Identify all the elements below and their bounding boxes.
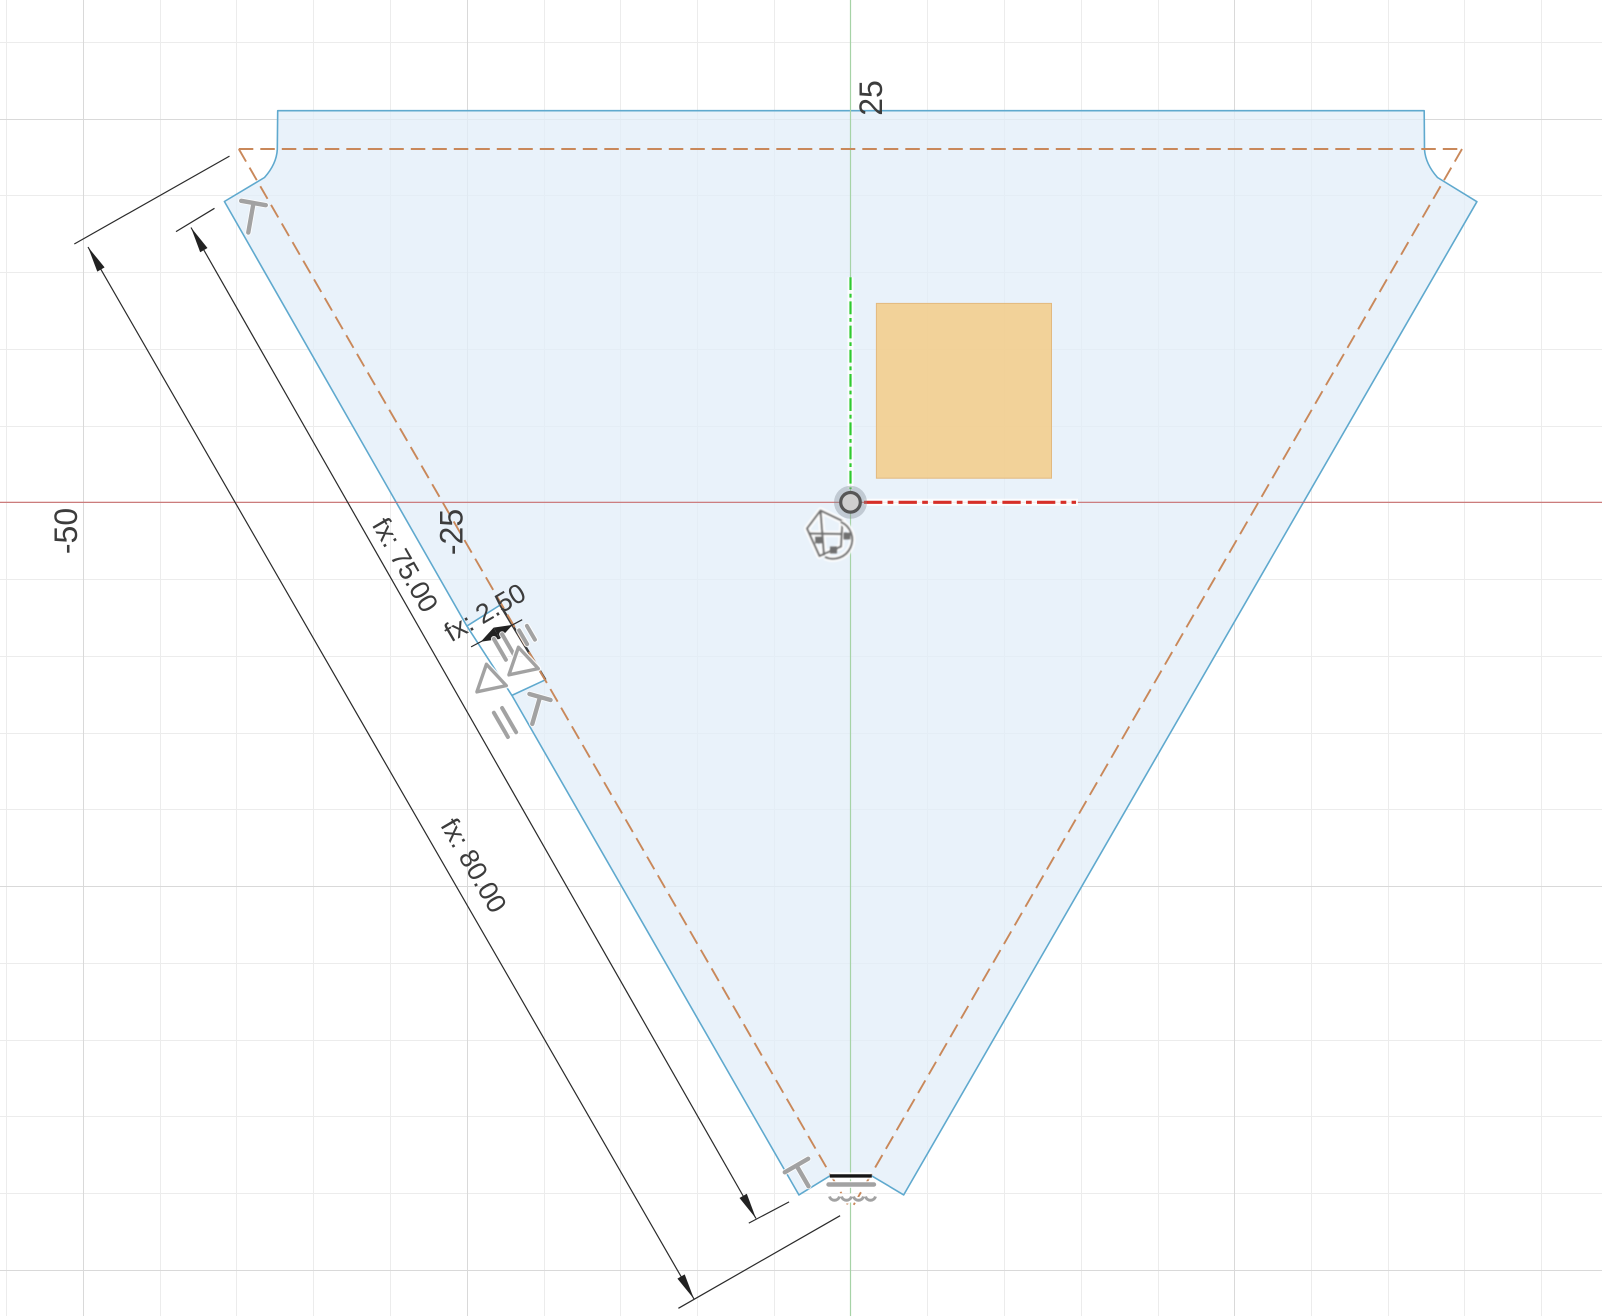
svg-text:25: 25 [853, 80, 889, 116]
svg-text:-50: -50 [48, 508, 84, 554]
svg-text:-25: -25 [434, 509, 470, 555]
svg-text:fx: 80.00: fx: 80.00 [435, 813, 513, 918]
